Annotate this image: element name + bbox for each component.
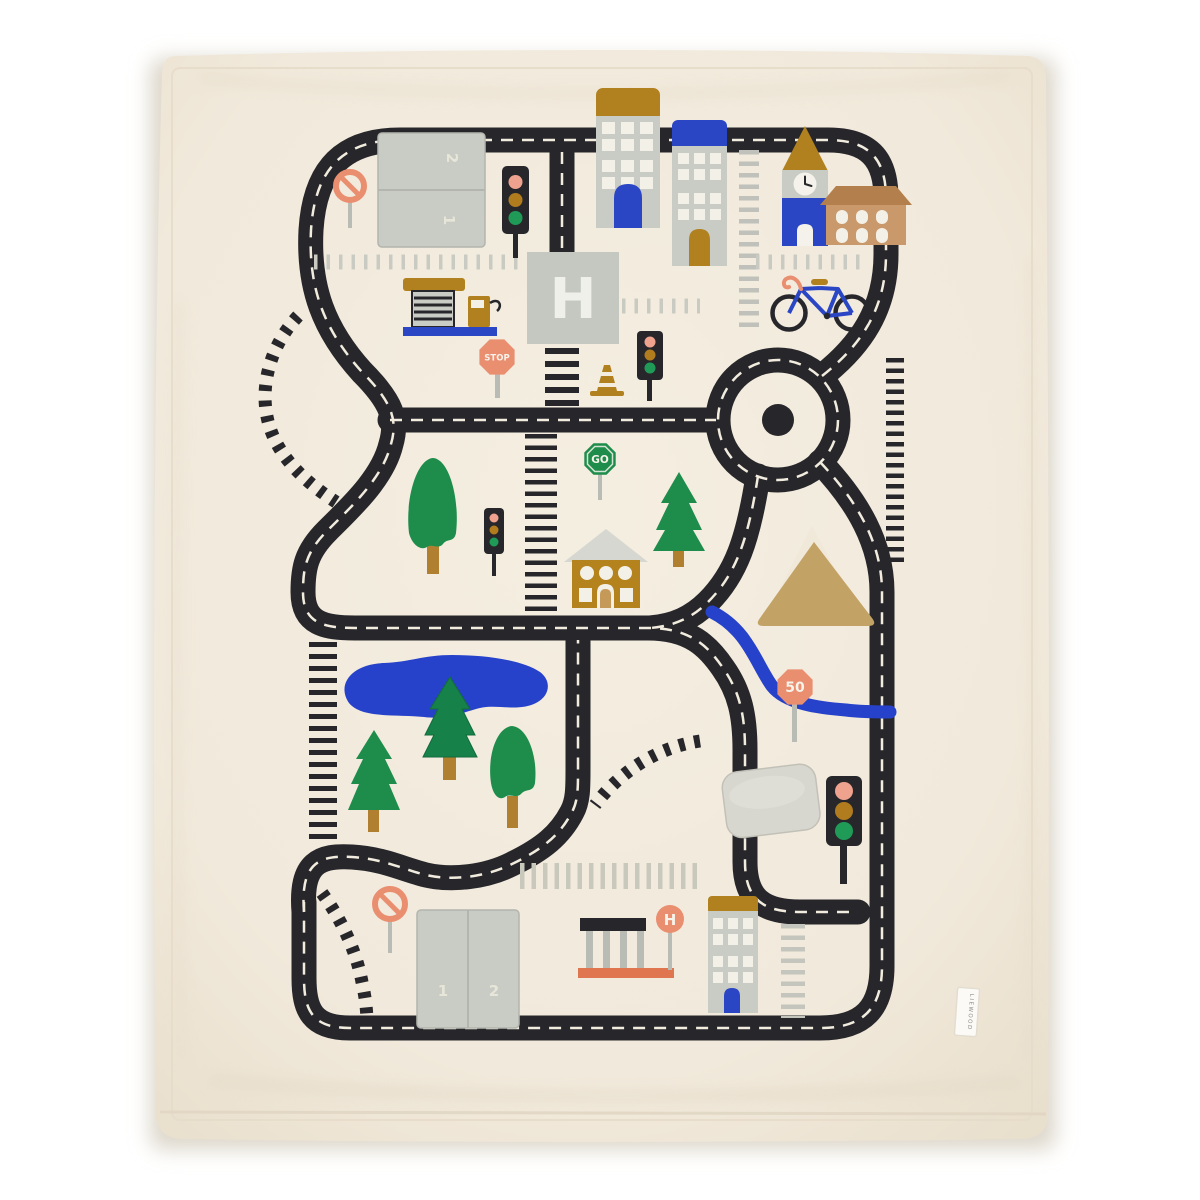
parking-bottom-label-2: 2 xyxy=(489,982,499,1000)
speed-limit-label: 50 xyxy=(785,680,805,696)
gas-station-base xyxy=(403,327,497,336)
building-blue-roof xyxy=(672,120,727,266)
helipad: H xyxy=(527,252,619,344)
brick-house xyxy=(820,186,912,245)
tower-door xyxy=(797,224,813,246)
gold-door xyxy=(689,229,710,266)
roundabout-center-dot xyxy=(762,404,794,436)
bicycle-crank xyxy=(824,313,830,319)
building-bottom xyxy=(708,896,758,1013)
parking-top-label-2: 2 xyxy=(443,153,461,163)
brick-house-roof xyxy=(820,186,912,205)
ochre-house-door xyxy=(600,589,611,608)
blue-door xyxy=(614,184,642,228)
product-photo: 2 1 xyxy=(0,0,1200,1200)
building-gold-roof xyxy=(596,88,660,228)
bus-stop-roof xyxy=(580,918,646,931)
play-blanket-scene: 2 1 xyxy=(0,0,1200,1200)
bus-stop-base xyxy=(578,968,674,978)
building-bottom-door xyxy=(724,988,740,1013)
brand-tag: LIEWOOD xyxy=(954,987,979,1036)
parking-pocket-top: 2 1 xyxy=(378,133,485,247)
stop-sign-label: STOP xyxy=(484,354,509,364)
parking-bottom-label-1: 1 xyxy=(438,982,448,1000)
parking-pocket-bottom: 1 2 xyxy=(417,910,519,1028)
parking-top-label-1: 1 xyxy=(440,215,458,225)
helipad-letter: H xyxy=(550,267,597,332)
blanket-binding xyxy=(160,1112,1046,1114)
go-sign-label: GO xyxy=(591,454,609,466)
bus-stop-sign-letter: H xyxy=(664,911,677,929)
bicycle-seat xyxy=(811,279,828,285)
pillow-pocket xyxy=(720,762,821,839)
